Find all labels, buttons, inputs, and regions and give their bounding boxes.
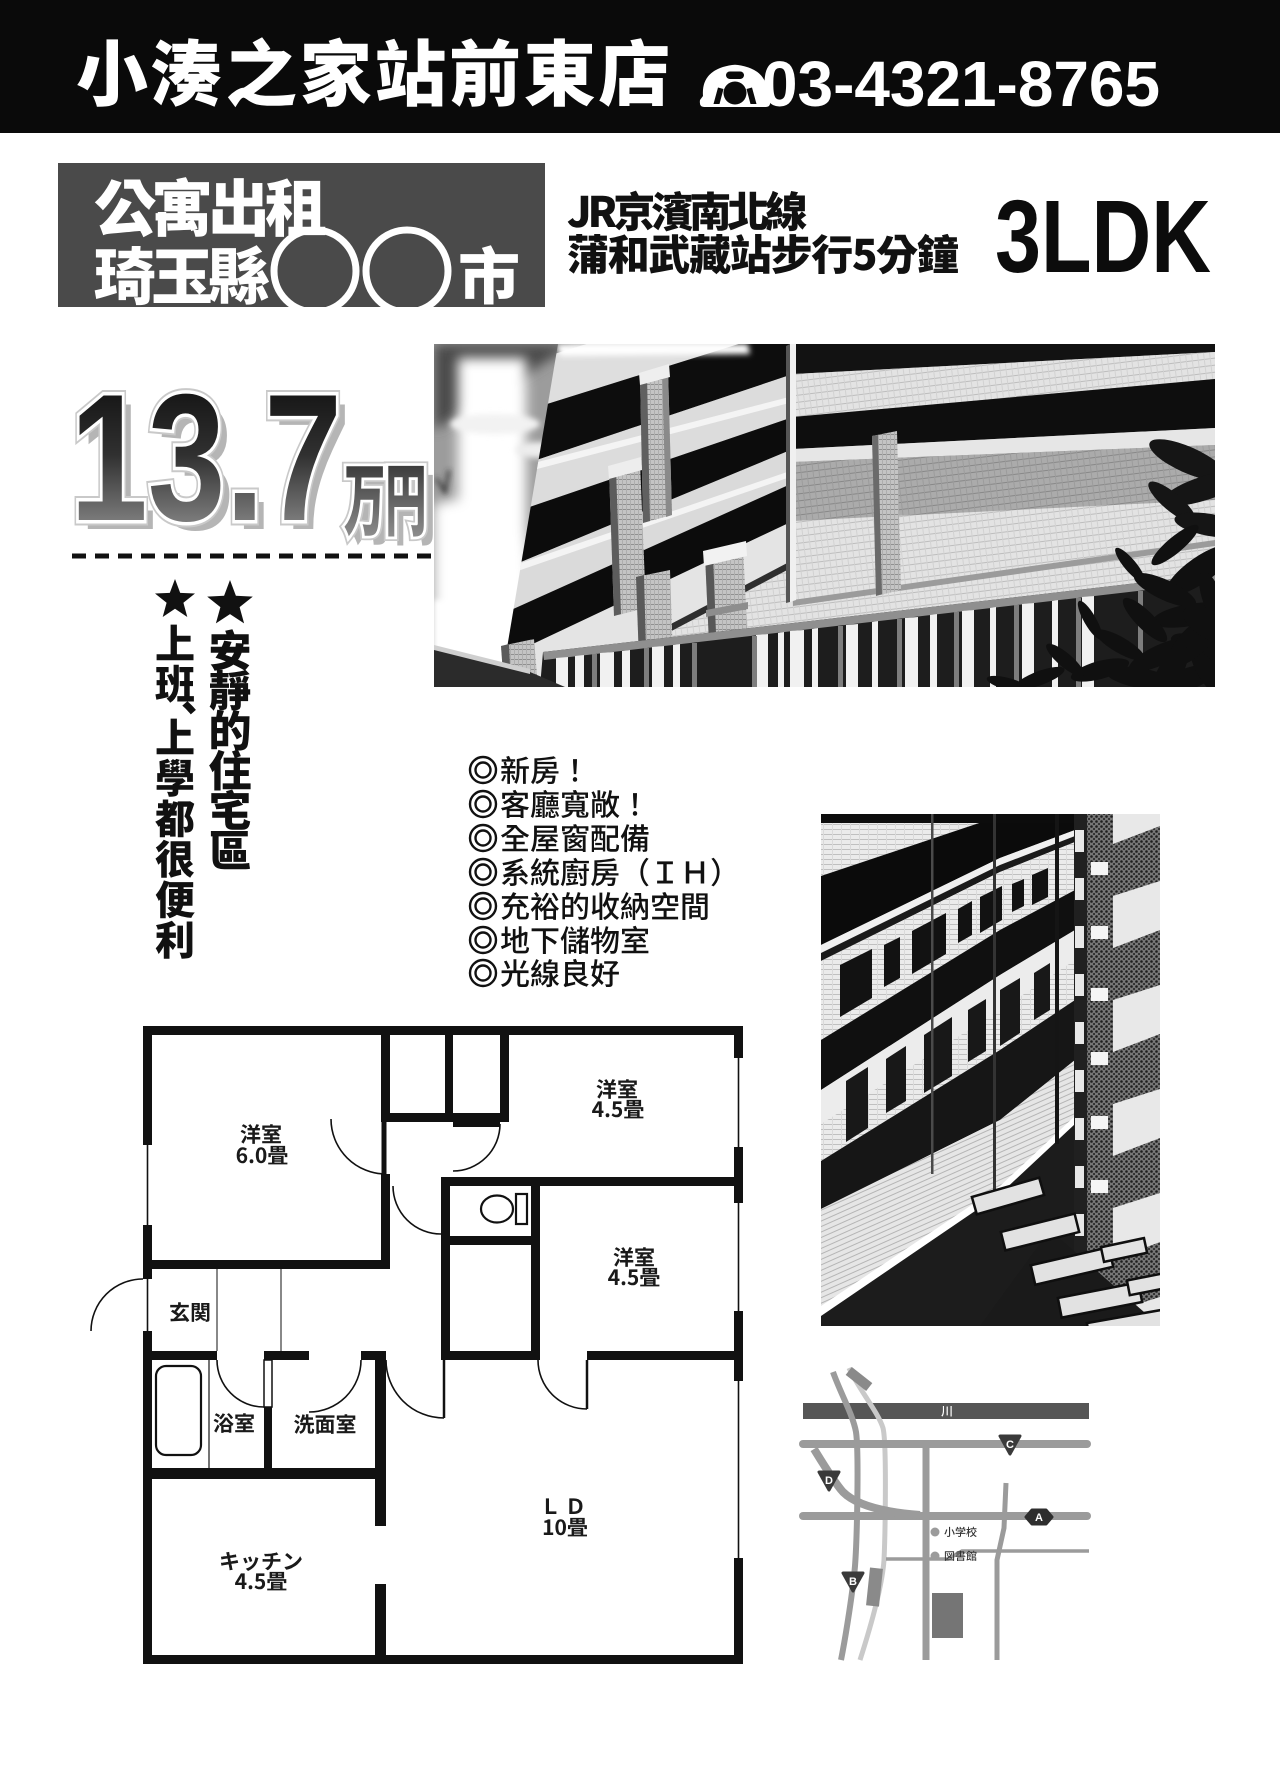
svg-text:03-4321-8765: 03-4321-8765 [762,48,1160,120]
svg-text:3LDK: 3LDK [995,179,1211,294]
svg-text:B: B [849,1576,857,1588]
svg-text:C: C [1006,1439,1014,1451]
svg-text:A: A [1035,1512,1043,1524]
svg-text:13.7: 13.7 [70,357,342,559]
svg-text:D: D [825,1475,833,1487]
